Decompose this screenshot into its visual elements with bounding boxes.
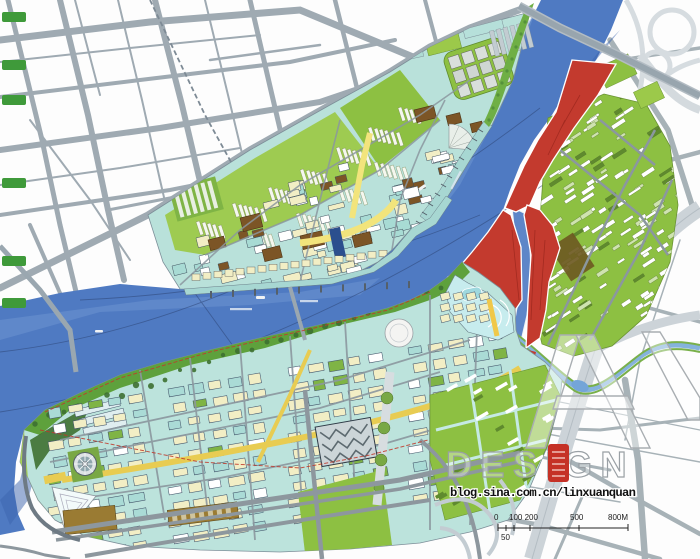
svg-text:800M: 800M xyxy=(608,513,628,522)
svg-text:blog.sina.com.cn/linxuanquan: blog.sina.com.cn/linxuanquan xyxy=(450,486,636,500)
svg-text:500: 500 xyxy=(570,513,584,522)
svg-text:100 200: 100 200 xyxy=(509,513,538,522)
svg-text:0: 0 xyxy=(494,513,499,522)
svg-text:50: 50 xyxy=(501,533,510,542)
svg-text:DESIGN: DESIGN xyxy=(446,444,635,485)
